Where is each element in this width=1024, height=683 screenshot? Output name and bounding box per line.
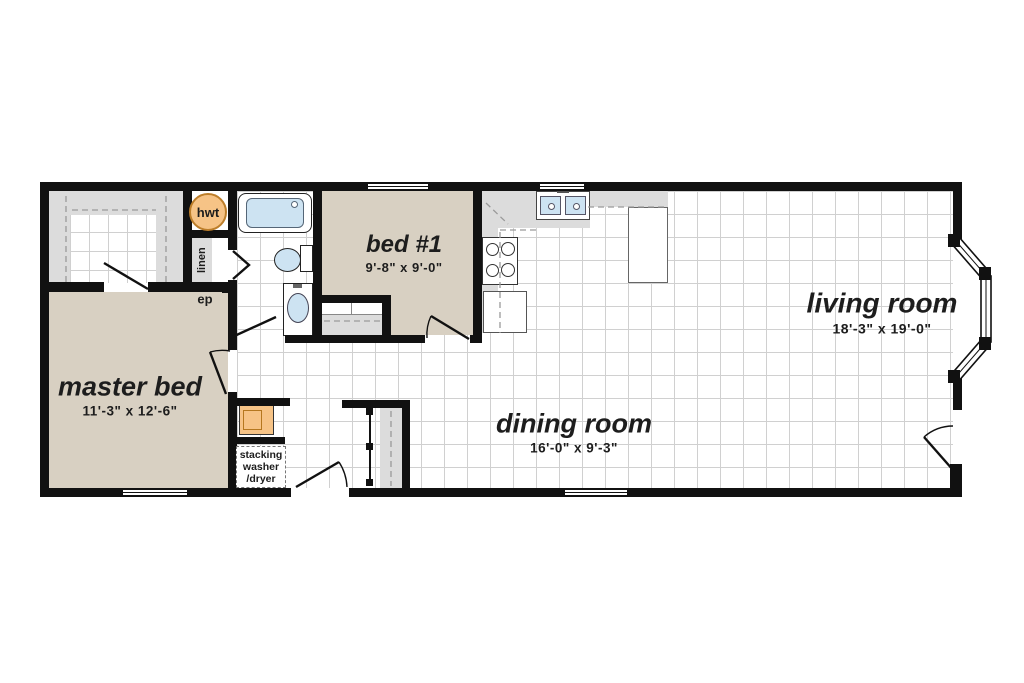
wall-segment [40,282,104,292]
wall-segment [313,182,322,343]
bed1-closet-divider [351,303,352,315]
kitchen-peninsula-counter [628,207,668,283]
window-kitchen [540,182,584,191]
room-name: master bed [58,374,202,401]
room-name: dining room [496,411,652,438]
wall-segment [40,182,49,497]
wall-segment [228,182,237,250]
linen-label: linen [192,238,212,282]
toilet-tank [300,245,313,272]
wall-segment [285,335,313,343]
wall-segment [950,464,962,490]
bed1-closet-shelf [322,303,382,315]
stove-burner-icon [486,264,499,277]
stove-burner-icon [501,263,515,277]
wall-segment [953,182,962,242]
washer-label-line: stacking [240,449,283,461]
room-dims: 11'-3" x 12'-6" [58,404,202,419]
washer-dryer-label-box: stacking washer /dryer [236,446,286,488]
entry-closet-shelf [380,408,402,488]
sink-drain-icon [573,203,580,210]
hot-water-tank-icon: hwt [189,193,227,231]
wall-segment [342,400,410,408]
wall-segment [320,295,391,303]
room-dims: 16'-0" x 9'-3" [496,441,652,456]
washer-label-line: /dryer [246,473,275,485]
wall-segment [402,400,410,488]
wall-segment [313,335,425,343]
ep-label: ep [197,292,212,307]
wall-segment [40,182,962,191]
vanity-faucet-icon [293,284,302,288]
walkin-closet-floor [70,213,158,283]
electrical-panel-icon [222,287,235,293]
wall-segment [953,372,962,410]
wall-segment [228,292,237,350]
window-master-bed [123,488,187,497]
wall-segment [228,437,285,444]
floor-plan: master bed 11'-3" x 12'-6" bed #1 9'-8" … [0,0,1024,683]
room-name: living room [807,290,958,318]
room-dims: 18'-3" x 19'-0" [807,321,958,337]
refrigerator-icon [483,291,527,333]
room-name: bed #1 [365,233,442,257]
vanity-sink-icon [287,293,309,323]
entry-door-opening [291,488,349,497]
room-dims: 9'-8" x 9'-0" [365,260,442,275]
washer-dryer-door [243,410,262,430]
room-label-living-room: living room 18'-3" x 19'-0" [807,290,958,337]
toilet-icon [274,248,301,272]
kitchen-counter-top-right [590,191,668,207]
linen-closet-floor [212,238,228,282]
room-label-bed1: bed #1 9'-8" x 9'-0" [365,233,442,275]
room-label-dining-room: dining room 16'-0" x 9'-3" [496,411,652,456]
room-label-master-bed: master bed 11'-3" x 12'-6" [58,374,202,419]
stove-burner-icon [501,242,515,256]
closet-shelf-top [49,191,185,215]
wall-segment [473,182,482,343]
closet-shelf-left [49,213,70,283]
bay-window-center [981,276,991,342]
wall-segment [228,398,290,406]
wall-segment [382,295,391,343]
tub-drain-icon [291,201,298,208]
sink-drain-icon [548,203,555,210]
closet-shelf-right [156,213,185,283]
window-bed1 [368,182,428,191]
hwt-label: hwt [197,205,219,220]
stove-burner-icon [486,243,499,256]
window-dining [565,488,627,497]
washer-label-line: washer [243,461,279,473]
